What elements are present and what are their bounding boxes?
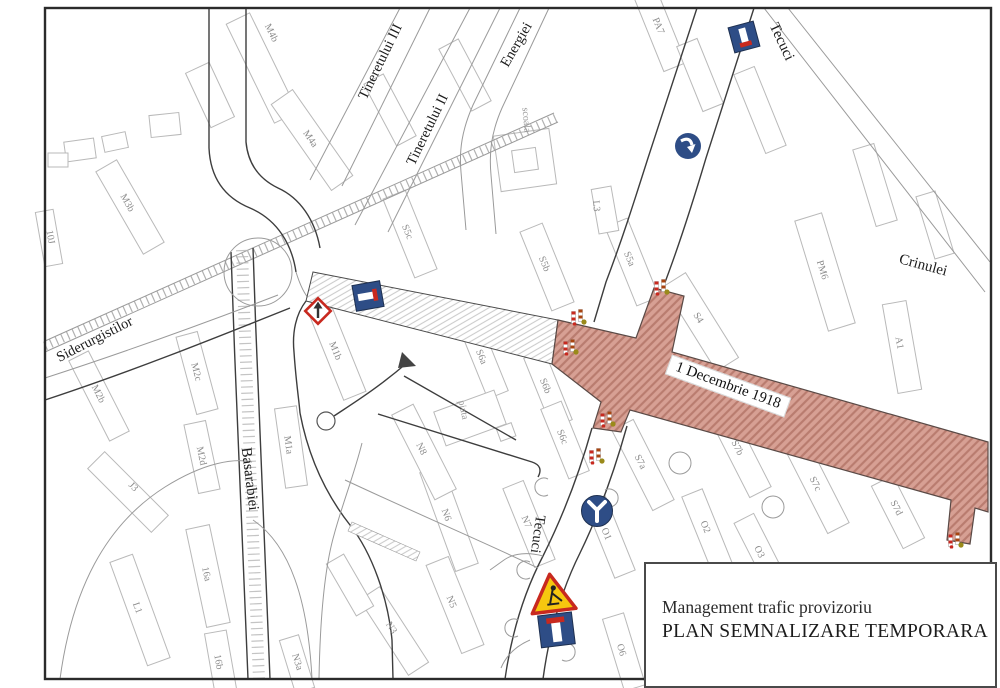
building-outline — [149, 112, 181, 137]
block-label-l3: L3 — [590, 200, 602, 212]
block-label-16b: 16b — [211, 654, 224, 671]
roadworks-dead-end-sign — [524, 568, 583, 652]
dead-end-ahead-sign-west — [350, 278, 387, 313]
building-outline — [634, 0, 686, 72]
title-block: Management trafic provizoriu PLAN SEMNAL… — [644, 562, 997, 688]
work-zone-marker-4 — [600, 411, 617, 428]
work-zone-marker-2 — [571, 309, 588, 326]
road-edge — [355, 8, 470, 225]
road-edge — [300, 413, 393, 679]
building-outline — [512, 147, 539, 172]
work-zone-marker-5 — [589, 448, 606, 465]
title-line-1: Management trafic provizoriu — [662, 597, 991, 618]
building-outline — [326, 554, 373, 616]
work-zone-marker-1 — [654, 279, 671, 296]
road-fork-sign — [579, 493, 615, 529]
road-edge — [501, 640, 530, 668]
work-zone-marker-6 — [948, 532, 965, 549]
building-outline — [186, 62, 235, 127]
building-outline — [88, 452, 169, 533]
road-edge — [535, 478, 548, 496]
title-line-2: PLAN SEMNALIZARE TEMPORARA — [662, 621, 991, 643]
building-outline — [916, 191, 954, 259]
traffic-plan-canvas: TecuciCrinuleiSiderurgistilorBasarabieiE… — [0, 0, 1000, 688]
detour-direction-sign — [301, 294, 335, 328]
area-label-scoala: scoala — [519, 107, 532, 133]
building-outline — [102, 132, 129, 153]
block-label-a1: A1 — [893, 336, 906, 350]
block-label-10j: 10J — [43, 229, 56, 245]
closed-road-section — [552, 288, 988, 544]
road-edge — [764, 8, 985, 292]
building-outline — [48, 153, 68, 167]
building-outline — [853, 144, 897, 227]
work-zone-marker-3 — [563, 339, 580, 356]
block-label-m1a: M1a — [281, 435, 294, 455]
building-outline — [734, 66, 786, 153]
turn-right-curve-sign — [672, 130, 704, 162]
building-outline — [64, 138, 96, 162]
